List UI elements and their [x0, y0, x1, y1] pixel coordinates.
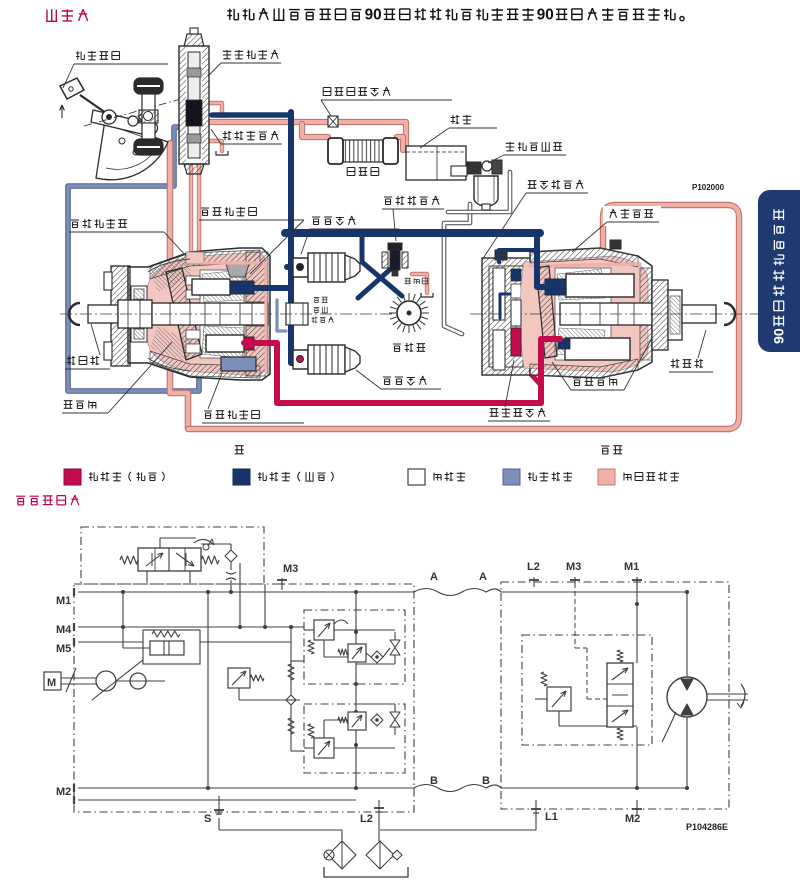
svg-text:L1: L1 [545, 811, 558, 823]
svg-text:A: A [430, 571, 438, 583]
svg-text:A: A [479, 571, 487, 583]
svg-text:M4: M4 [56, 624, 72, 636]
svg-text:S: S [204, 813, 211, 825]
svg-text:L2: L2 [360, 813, 373, 825]
svg-text:M1: M1 [56, 595, 71, 607]
svg-text:M2: M2 [56, 786, 71, 798]
svg-text:M1: M1 [624, 561, 639, 573]
svg-text:M: M [47, 677, 56, 689]
svg-text:B: B [430, 775, 438, 787]
svg-text:M5: M5 [56, 643, 71, 655]
svg-text:90: 90 [537, 7, 554, 24]
svg-text:L2: L2 [527, 561, 540, 573]
svg-text:90: 90 [772, 328, 788, 344]
svg-text:B: B [482, 775, 490, 787]
svg-text:M3: M3 [283, 563, 298, 575]
svg-text:90: 90 [365, 7, 382, 24]
svg-text:M3: M3 [566, 561, 581, 573]
svg-text:M2: M2 [625, 813, 640, 825]
svg-text:P104286E: P104286E [686, 822, 728, 832]
svg-text:P102000: P102000 [692, 183, 725, 192]
